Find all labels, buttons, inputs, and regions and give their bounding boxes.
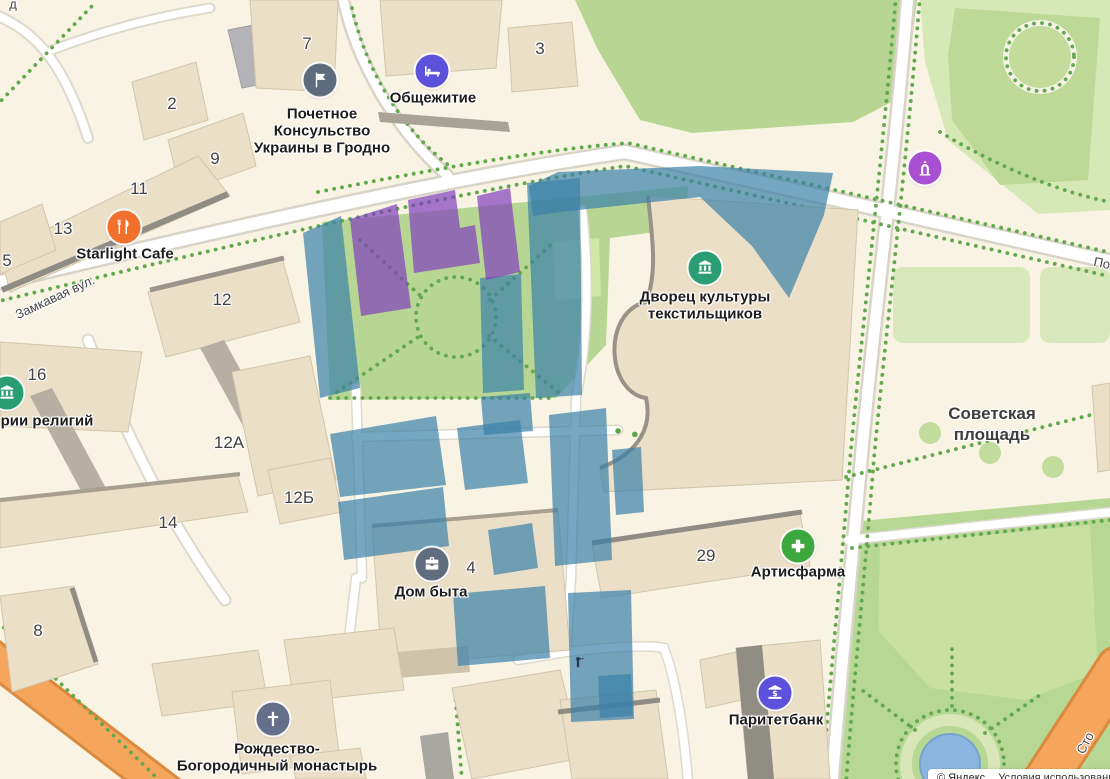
barrier-marker[interactable] [570, 654, 586, 670]
sovetskaya-square: Советская [948, 404, 1036, 424]
building-number: 8 [33, 621, 42, 641]
consulate-label[interactable]: Консульство [274, 123, 371, 140]
starlight-cafe-marker[interactable] [108, 211, 141, 244]
attraction-marker[interactable] [909, 152, 942, 185]
dom-byta-label[interactable]: Дом быта [395, 584, 468, 601]
dom-byta-marker[interactable] [416, 548, 449, 581]
briefcase-icon [422, 554, 443, 575]
building-number: 12Б [284, 488, 314, 508]
flag-icon [310, 70, 331, 91]
bank-icon: $ [765, 683, 786, 704]
east-street-label: По [1092, 254, 1110, 272]
barrier-icon [570, 654, 586, 670]
artispharma-marker[interactable] [782, 530, 815, 563]
consulate-label[interactable]: Украины в Гродно [254, 140, 390, 157]
paritetbank-label[interactable]: Паритетбанк [729, 712, 824, 729]
map-base-layer [0, 0, 1110, 779]
consulate-label[interactable]: Почетное [287, 106, 357, 123]
building-number: 29 [697, 546, 716, 566]
map-attribution[interactable]: © Яндекс Условия использования [928, 769, 1110, 779]
building-number: 12А [214, 433, 244, 453]
building-number: 4 [466, 558, 475, 578]
building-number: 16 [28, 365, 47, 385]
paritetbank-marker[interactable]: $ [759, 677, 792, 710]
museum-icon [695, 258, 716, 279]
building-number: 7 [302, 34, 311, 54]
map-canvas[interactable]: © Яндекс Условия использования ПочетноеК… [0, 0, 1110, 779]
bed-icon [422, 61, 443, 82]
monastery-marker[interactable] [257, 703, 290, 736]
starlight-cafe-label[interactable]: Starlight Cafe [76, 246, 174, 263]
building-number: 3 [535, 39, 544, 59]
palace-of-culture-label[interactable]: текстильщиков [648, 306, 762, 323]
svg-text:$: $ [772, 689, 777, 698]
plus-icon [788, 536, 809, 557]
religion-museum-label[interactable]: рии религий [1, 413, 94, 430]
top-left-street-label: д [9, 0, 17, 12]
palace-of-culture-label[interactable]: Дворец культуры [640, 289, 771, 306]
building-number: 5 [2, 251, 11, 271]
attribution-copyright: © Яндекс [937, 772, 985, 779]
building-number: 13 [54, 219, 73, 239]
artispharma-label[interactable]: Артисфарма [751, 564, 845, 581]
hostel-label[interactable]: Общежитие [390, 90, 477, 107]
monastery-label[interactable]: Рождество- [234, 741, 320, 758]
cross-icon [263, 709, 284, 730]
building-number: 12 [213, 290, 232, 310]
museum-icon [0, 383, 18, 404]
building-number: 2 [167, 94, 176, 114]
hostel-marker[interactable] [416, 55, 449, 88]
building-number: 9 [210, 149, 219, 169]
sovetskaya-square: площадь [954, 425, 1030, 445]
consulate-marker[interactable] [304, 64, 337, 97]
attraction-icon [915, 158, 936, 179]
attribution-terms-link[interactable]: Условия использования [998, 772, 1110, 779]
palace-of-culture-marker[interactable] [689, 252, 722, 285]
monastery-label[interactable]: Богородичный монастырь [177, 758, 377, 775]
building-number: 14 [159, 513, 178, 533]
building-number: 11 [130, 179, 148, 199]
restaurant-icon [114, 217, 135, 238]
